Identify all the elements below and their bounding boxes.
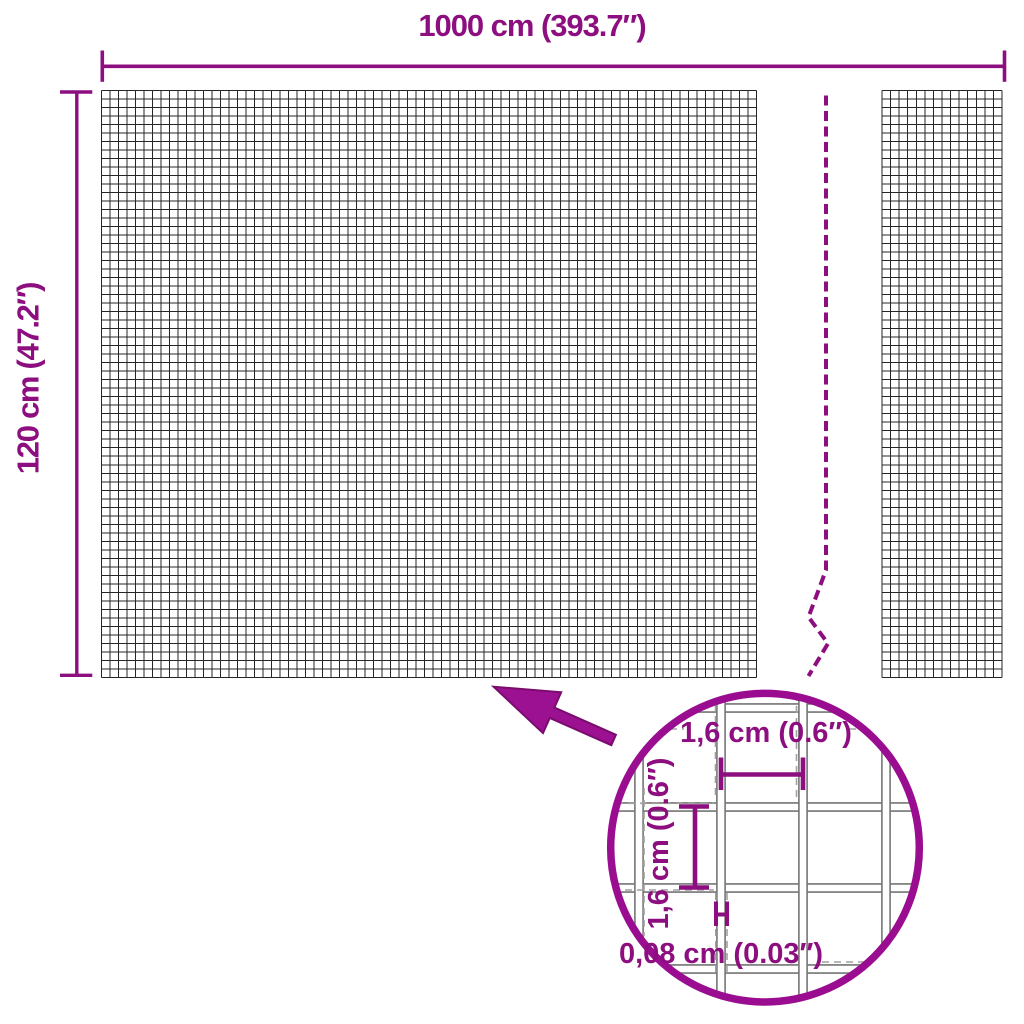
svg-text:0,08 cm (0.03″): 0,08 cm (0.03″) [619, 938, 823, 970]
svg-text:1,6 cm (0.6″): 1,6 cm (0.6″) [680, 717, 852, 749]
svg-text:1,6 cm (0.6″): 1,6 cm (0.6″) [643, 758, 675, 930]
svg-text:1000 cm (393.7″): 1000 cm (393.7″) [418, 8, 645, 43]
svg-text:120 cm (47.2″): 120 cm (47.2″) [11, 283, 46, 474]
